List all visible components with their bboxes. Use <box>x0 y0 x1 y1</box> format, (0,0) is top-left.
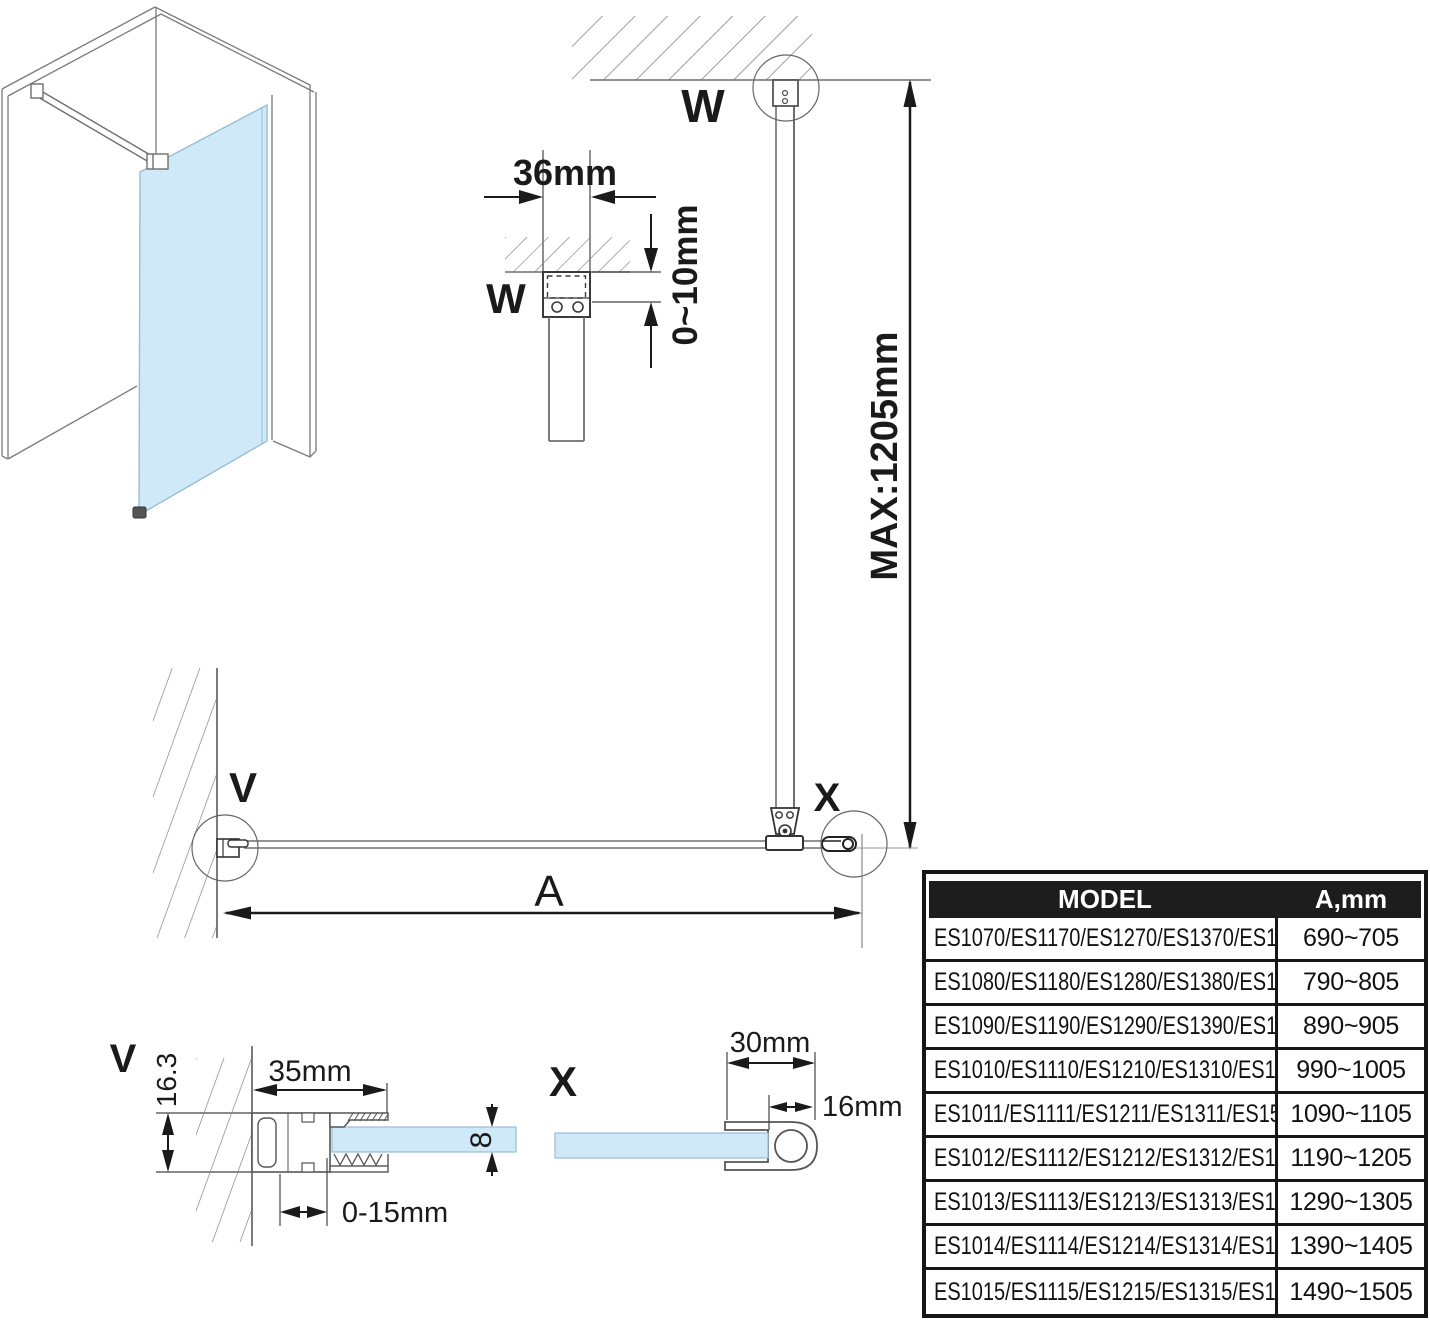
span-dimension-text: A <box>534 867 564 916</box>
ceiling-bracket <box>773 80 798 106</box>
model-cell: ES1080/ES1180/ES1280/ES1380/ES1580 <box>934 968 1278 997</box>
table-row: ES1013/ES1113/ES1213/ES1313/ES1513 1290~… <box>926 1182 1424 1226</box>
floor-foot <box>133 507 146 518</box>
model-cell: ES1015/ES1115/ES1215/ES1315/ES1515 <box>934 1278 1278 1307</box>
detail-v-wall-hatch <box>196 1058 252 1242</box>
a-cell: 890~905 <box>1278 1006 1424 1047</box>
table-row: ES1010/ES1110/ES1210/ES1310/ES1510 990~1… <box>926 1050 1424 1094</box>
table-row: ES1012/ES1112/ES1212/ES1312/ES1512 1190~… <box>926 1138 1424 1182</box>
header-a-mm: A,mm <box>1281 884 1421 915</box>
a-cell: 690~705 <box>1278 918 1424 959</box>
support-bar-isometric <box>31 84 168 169</box>
model-table-header: MODEL A,mm <box>929 881 1421 918</box>
detail-v-width-text: 35mm <box>268 1055 351 1088</box>
a-cell: 1390~1405 <box>1278 1226 1424 1267</box>
a-cell: 790~805 <box>1278 962 1424 1003</box>
detail-v-height-text: 16.3 <box>151 1053 182 1108</box>
a-cell: 990~1005 <box>1278 1050 1424 1091</box>
ceiling-hatch <box>572 16 812 80</box>
a-cell: 1290~1305 <box>1278 1182 1424 1223</box>
detail-x-depth-text: 16mm <box>822 1091 903 1123</box>
table-row: ES1015/ES1115/ES1215/ES1315/ES1515 1490~… <box>926 1270 1424 1314</box>
model-cell: ES1012/ES1112/ES1212/ES1312/ES1512 <box>934 1144 1278 1173</box>
detail-w-bracket <box>543 272 590 317</box>
model-cell: ES1011/ES1111/ES1211/ES1311/ES1511 <box>934 1100 1278 1129</box>
label-x-detail: X <box>549 1058 577 1105</box>
header-model: MODEL <box>929 884 1281 915</box>
detail-w-bar <box>549 317 584 441</box>
detail-x-width-text: 30mm <box>730 1027 811 1059</box>
label-w-detail: W <box>486 275 526 322</box>
a-cell: 1490~1505 <box>1278 1270 1424 1314</box>
clamp-spring <box>334 1154 382 1165</box>
end-profile-tube <box>775 1130 807 1162</box>
glass-thickness-text: 8 <box>465 1132 498 1149</box>
detail-w: 36mm 0~10mm W <box>484 150 705 441</box>
max-height-text: MAX:1205mm <box>864 331 906 580</box>
model-cell: ES1010/ES1110/ES1210/ES1310/ES1510 <box>934 1056 1278 1085</box>
vertical-support-bar <box>753 55 819 808</box>
detail-v-adjust-text: 0-15mm <box>342 1197 448 1229</box>
table-row: ES1011/ES1111/ES1211/ES1311/ES1511 1090~… <box>926 1094 1424 1138</box>
a-cell: 1090~1105 <box>1278 1094 1424 1135</box>
plan-view: A V X <box>153 668 887 948</box>
model-cell: ES1090/ES1190/ES1290/ES1390/ES1590 <box>934 1012 1278 1041</box>
glass-section-x <box>555 1133 768 1158</box>
detail-w-ceiling-hatch <box>505 237 630 272</box>
a-cell: 1190~1205 <box>1278 1138 1424 1179</box>
label-w-top: W <box>681 80 725 132</box>
glass-clamp-plan <box>766 836 803 850</box>
table-row: ES1014/ES1114/ES1214/ES1314/ES1514 1390~… <box>926 1226 1424 1270</box>
wall-hatch <box>153 668 217 938</box>
model-table: MODEL A,mm ES1070/ES1170/ES1270/ES1370/E… <box>922 870 1428 1318</box>
label-v-detail: V <box>110 1037 137 1081</box>
detail-w-width-text: 36mm <box>513 152 617 193</box>
model-cell: ES1014/ES1114/ES1214/ES1314/ES1514 <box>934 1232 1278 1261</box>
table-row: ES1070/ES1170/ES1270/ES1370/ES1570 690~7… <box>926 918 1424 962</box>
label-v-plan: V <box>229 764 257 811</box>
installation-diagram: W MAX:1205mm 36mm 0~10mm W <box>0 0 1430 1322</box>
model-cell: ES1013/ES1113/ES1213/ES1313/ES1513 <box>934 1188 1278 1217</box>
max-height-dimension: MAX:1205mm <box>856 79 918 850</box>
label-x-plan: X <box>814 776 841 820</box>
detail-x: X 30mm 16mm <box>549 1027 903 1170</box>
detail-w-gap-text: 0~10mm <box>666 204 705 345</box>
model-cell: ES1070/ES1170/ES1270/ES1370/ES1570 <box>934 924 1278 953</box>
detail-v: V 16.3 35mm 0-15mm 8 <box>110 1037 516 1246</box>
table-row: ES1090/ES1190/ES1290/ES1390/ES1590 890~9… <box>926 1006 1424 1050</box>
ceiling-section <box>572 16 931 80</box>
table-row: ES1080/ES1180/ES1280/ES1380/ES1580 790~8… <box>926 962 1424 1006</box>
